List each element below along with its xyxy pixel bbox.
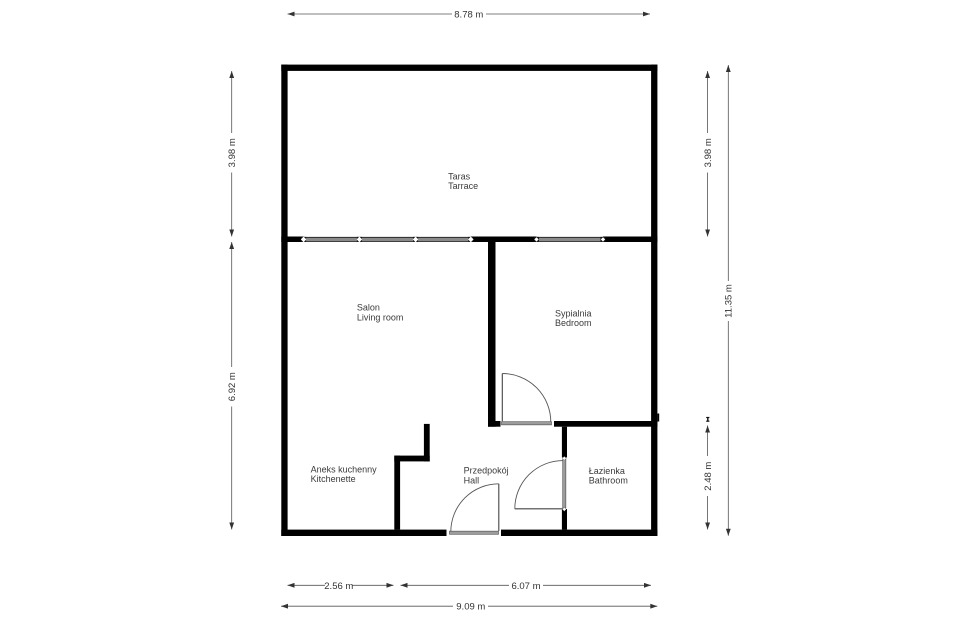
svg-text:Przedpokój: Przedpokój — [464, 466, 509, 476]
svg-text:Sypialnia: Sypialnia — [555, 308, 592, 318]
svg-text:6.07 m: 6.07 m — [511, 581, 540, 592]
svg-text:Taras: Taras — [448, 171, 471, 181]
svg-text:Hall: Hall — [464, 475, 480, 485]
svg-text:Łazienka: Łazienka — [589, 466, 625, 476]
svg-text:Salon: Salon — [357, 303, 380, 313]
svg-text:6.92 m: 6.92 m — [227, 372, 238, 401]
svg-text:Bedroom: Bedroom — [555, 318, 592, 328]
svg-text:2.56 m: 2.56 m — [324, 581, 353, 592]
svg-text:3.98 m: 3.98 m — [703, 138, 714, 167]
svg-text:Tarrace: Tarrace — [448, 181, 478, 191]
svg-text:Living room: Living room — [357, 312, 404, 322]
svg-text:3.98 m: 3.98 m — [227, 138, 238, 167]
svg-text:8.78 m: 8.78 m — [454, 10, 483, 21]
svg-text:Kitchenette: Kitchenette — [311, 474, 356, 484]
svg-text:11.35 m: 11.35 m — [724, 284, 735, 318]
svg-text:2.48 m: 2.48 m — [703, 462, 714, 491]
svg-text:Aneks kuchenny: Aneks kuchenny — [311, 465, 378, 475]
svg-text:9.09 m: 9.09 m — [456, 602, 485, 613]
svg-text:Bathroom: Bathroom — [589, 476, 628, 486]
